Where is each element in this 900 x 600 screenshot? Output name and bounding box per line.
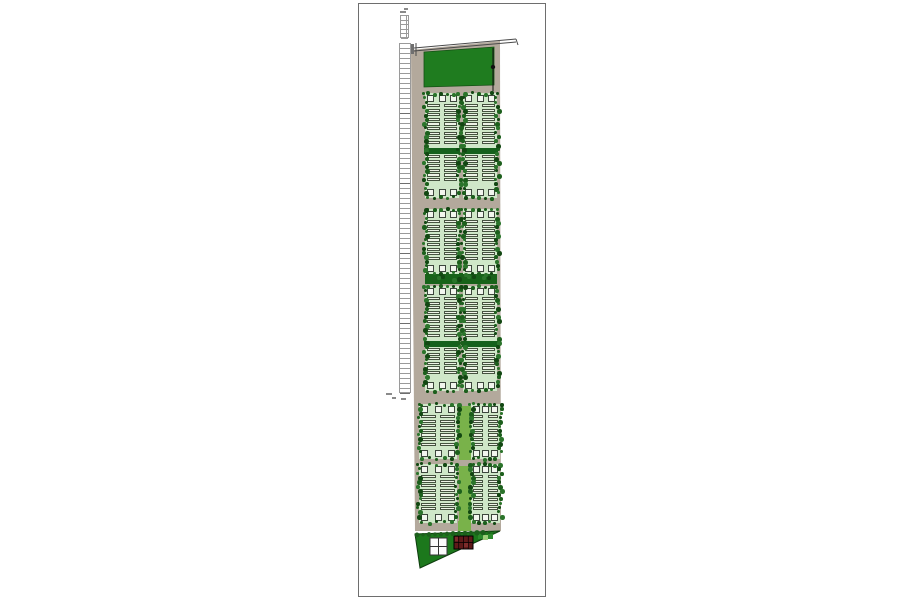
- tree: [490, 197, 494, 201]
- tree: [461, 350, 464, 353]
- unit-cap: [465, 382, 472, 389]
- housing-unit: [465, 225, 478, 228]
- unit-cap: [465, 211, 472, 218]
- park-area: [424, 47, 494, 87]
- tree: [494, 324, 497, 327]
- housing-unit: [440, 484, 455, 487]
- housing-unit: [482, 252, 495, 255]
- tree: [484, 273, 488, 277]
- housing-unit: [482, 109, 495, 112]
- tree: [457, 191, 461, 195]
- housing-unit: [482, 334, 495, 337]
- unit-cap: [427, 288, 434, 295]
- tree: [496, 208, 499, 211]
- tree: [455, 493, 458, 496]
- tree: [425, 260, 429, 264]
- housing-unit: [440, 438, 455, 441]
- tree: [427, 532, 432, 537]
- tree: [457, 238, 460, 241]
- housing-unit: [427, 104, 440, 107]
- tree: [439, 388, 442, 391]
- housing-unit: [465, 366, 478, 369]
- housing-unit: [473, 415, 483, 418]
- tree: [452, 390, 455, 393]
- housing-unit: [465, 113, 478, 116]
- tree: [498, 425, 501, 428]
- tree: [469, 531, 474, 536]
- tree: [493, 403, 496, 406]
- tree: [464, 273, 468, 277]
- housing-unit: [482, 302, 495, 305]
- housing-unit: [427, 243, 440, 246]
- screenshot-canvas: [0, 0, 900, 600]
- tree: [471, 272, 474, 275]
- tree: [461, 157, 465, 161]
- tree: [425, 101, 428, 104]
- unit-cap: [439, 211, 446, 218]
- unit-cap: [488, 265, 495, 272]
- housing-unit: [465, 141, 478, 144]
- housing-unit: [444, 325, 457, 328]
- housing-unit: [427, 334, 440, 337]
- housing-unit: [465, 127, 478, 130]
- tree: [452, 93, 456, 97]
- tree: [443, 520, 446, 523]
- housing-unit: [427, 113, 440, 116]
- tree: [416, 472, 419, 475]
- tree: [415, 533, 420, 538]
- housing-unit: [465, 248, 478, 251]
- housing-unit: [473, 489, 483, 492]
- tree: [423, 337, 427, 341]
- housing-unit: [444, 252, 457, 255]
- tree: [488, 463, 492, 467]
- tree: [493, 464, 497, 468]
- housing-unit: [444, 229, 457, 232]
- housing-unit: [482, 315, 495, 318]
- housing-unit: [482, 329, 495, 332]
- tree: [463, 217, 466, 220]
- housing-unit: [473, 424, 483, 427]
- tree: [443, 463, 447, 467]
- tree: [451, 531, 456, 536]
- tree: [500, 515, 505, 520]
- tree: [500, 472, 504, 476]
- tree: [435, 464, 438, 467]
- mini-parking-stall: [401, 34, 408, 39]
- housing-unit: [427, 225, 440, 228]
- housing-unit: [465, 243, 478, 246]
- tree: [483, 458, 487, 462]
- housing-unit: [440, 415, 455, 418]
- green-mid-band: [462, 148, 498, 154]
- tree: [463, 311, 466, 314]
- tree: [419, 412, 423, 416]
- housing-unit: [421, 415, 436, 418]
- housing-unit: [465, 136, 478, 139]
- housing-unit: [427, 220, 440, 223]
- housing-unit: [440, 429, 455, 432]
- tree: [471, 195, 475, 199]
- housing-unit: [482, 366, 495, 369]
- housing-unit: [482, 348, 495, 351]
- tree: [499, 502, 502, 505]
- unit-cap: [450, 211, 457, 218]
- tree: [463, 247, 466, 250]
- housing-unit: [444, 169, 457, 172]
- tree: [471, 91, 474, 94]
- tree: [477, 196, 481, 200]
- tree: [433, 208, 437, 212]
- tree: [452, 209, 455, 212]
- housing-unit: [465, 325, 478, 328]
- tree: [428, 522, 432, 526]
- tree: [460, 384, 464, 388]
- housing-unit: [444, 127, 457, 130]
- tree: [422, 384, 425, 387]
- housing-unit: [465, 234, 478, 237]
- tree: [484, 93, 488, 97]
- mini-parking-grid: [400, 15, 409, 38]
- tree: [494, 131, 497, 134]
- tree: [474, 530, 479, 535]
- tree: [416, 463, 419, 466]
- housing-unit: [488, 443, 498, 446]
- tree: [494, 114, 498, 118]
- housing-unit: [440, 480, 455, 483]
- housing-unit: [427, 248, 440, 251]
- housing-unit: [440, 443, 455, 446]
- tree: [493, 522, 496, 525]
- housing-unit: [440, 498, 455, 501]
- housing-unit: [465, 315, 478, 318]
- housing-unit: [473, 503, 483, 506]
- housing-unit: [465, 155, 478, 158]
- housing-unit: [488, 424, 498, 427]
- unit-cap: [435, 406, 442, 413]
- housing-unit: [488, 415, 498, 418]
- housing-unit: [482, 122, 495, 125]
- tree: [446, 207, 450, 211]
- tree: [433, 197, 436, 200]
- housing-unit: [444, 334, 457, 337]
- housing-unit: [421, 498, 436, 501]
- housing-unit: [421, 424, 436, 427]
- tree: [456, 354, 459, 357]
- tree: [421, 533, 424, 536]
- red-building-cell: [455, 537, 458, 541]
- housing-unit: [473, 433, 483, 436]
- housing-unit: [488, 433, 498, 436]
- tree: [426, 208, 429, 211]
- housing-unit: [444, 306, 457, 309]
- unit-cap: [482, 406, 489, 413]
- unit-cap: [448, 450, 455, 457]
- unit-cap: [477, 265, 484, 272]
- tree: [483, 462, 487, 466]
- housing-unit: [421, 433, 436, 436]
- tree: [484, 208, 487, 211]
- tree: [494, 531, 497, 534]
- tree: [422, 92, 425, 95]
- tree: [468, 515, 473, 520]
- tree: [472, 275, 476, 279]
- tree: [433, 532, 437, 536]
- unit-cap: [482, 466, 489, 473]
- housing-unit: [465, 334, 478, 337]
- housing-unit: [421, 480, 436, 483]
- housing-unit: [482, 362, 495, 365]
- stray-mark: [392, 397, 396, 399]
- tree: [457, 425, 460, 428]
- housing-unit: [427, 329, 440, 332]
- tree: [463, 174, 466, 177]
- tree: [450, 520, 454, 524]
- housing-unit: [421, 475, 436, 478]
- housing-unit: [482, 127, 495, 130]
- tree: [468, 403, 471, 406]
- tree: [472, 402, 475, 405]
- housing-unit: [444, 357, 457, 360]
- housing-unit: [427, 315, 440, 318]
- tree: [497, 135, 501, 139]
- housing-unit: [444, 238, 457, 241]
- housing-unit: [444, 320, 457, 323]
- housing-unit: [444, 178, 457, 181]
- tree: [462, 114, 466, 118]
- tree: [463, 187, 466, 190]
- unit-cap: [491, 450, 498, 457]
- housing-unit: [444, 136, 457, 139]
- tree: [484, 197, 487, 200]
- housing-unit: [427, 311, 440, 314]
- housing-unit: [482, 306, 495, 309]
- tree: [463, 230, 467, 234]
- tree: [416, 506, 419, 509]
- tree: [458, 337, 462, 341]
- tree: [454, 515, 458, 519]
- housing-unit: [427, 127, 440, 130]
- housing-unit: [421, 420, 436, 423]
- unit-cap: [421, 450, 428, 457]
- housing-unit: [482, 353, 495, 356]
- stray-mark: [386, 393, 392, 395]
- housing-unit: [465, 252, 478, 255]
- tree: [495, 260, 499, 264]
- housing-unit: [427, 238, 440, 241]
- housing-unit: [440, 424, 455, 427]
- unit-cap: [491, 514, 498, 521]
- housing-unit: [473, 438, 483, 441]
- housing-unit: [444, 141, 457, 144]
- housing-unit: [444, 104, 457, 107]
- tree: [446, 285, 449, 288]
- tree: [496, 92, 499, 95]
- unit-cap: [439, 265, 446, 272]
- housing-unit: [444, 122, 457, 125]
- tree: [424, 221, 427, 224]
- tree: [471, 208, 475, 212]
- tree: [424, 311, 427, 314]
- parking-stall: [400, 389, 410, 394]
- housing-unit: [444, 297, 457, 300]
- tree: [445, 532, 449, 536]
- tree: [470, 472, 474, 476]
- red-building-cell: [464, 543, 468, 547]
- tree: [500, 412, 503, 415]
- tree: [439, 208, 443, 212]
- tree: [433, 390, 437, 394]
- tree: [459, 230, 462, 233]
- tree: [425, 307, 429, 311]
- housing-unit: [473, 420, 483, 423]
- tree: [423, 174, 426, 177]
- tree: [452, 271, 455, 274]
- housing-unit: [482, 248, 495, 251]
- tree: [464, 389, 468, 393]
- tree: [494, 311, 497, 314]
- housing-unit: [440, 433, 455, 436]
- tree: [456, 148, 459, 151]
- unit-cap: [473, 466, 480, 473]
- tree: [425, 157, 429, 161]
- housing-unit: [440, 420, 455, 423]
- housing-unit: [465, 320, 478, 323]
- unit-cap: [448, 406, 455, 413]
- tree: [462, 191, 466, 195]
- tree: [490, 208, 493, 211]
- housing-unit: [444, 302, 457, 305]
- housing-unit: [488, 498, 498, 501]
- housing-unit: [427, 173, 440, 176]
- housing-unit: [427, 252, 440, 255]
- tree: [483, 403, 486, 406]
- tree: [461, 380, 464, 383]
- unit-cap: [450, 382, 457, 389]
- tree: [455, 476, 458, 479]
- tree: [424, 294, 427, 297]
- housing-unit: [444, 164, 457, 167]
- housing-unit: [482, 173, 495, 176]
- tree: [462, 144, 466, 148]
- tree: [418, 425, 421, 428]
- housing-unit: [421, 429, 436, 432]
- housing-unit: [465, 357, 478, 360]
- tree: [499, 416, 502, 419]
- tree: [471, 286, 475, 290]
- tree: [425, 230, 428, 233]
- tree: [443, 456, 447, 460]
- unit-cap: [477, 211, 484, 218]
- housing-unit: [440, 475, 455, 478]
- tree: [463, 238, 466, 241]
- tree: [456, 328, 459, 331]
- tree: [446, 272, 449, 275]
- tree: [433, 285, 436, 288]
- tree: [490, 272, 493, 275]
- tree: [477, 389, 481, 393]
- tree: [457, 531, 462, 536]
- tree: [420, 457, 424, 461]
- housing-unit: [421, 503, 436, 506]
- housing-unit: [444, 362, 457, 365]
- tree: [428, 403, 431, 406]
- tree: [418, 442, 421, 445]
- tree: [480, 530, 485, 535]
- unit-cap: [439, 95, 446, 102]
- housing-unit: [440, 489, 455, 492]
- road-right-tick: [516, 39, 518, 45]
- unit-cap: [477, 189, 484, 196]
- tree: [426, 272, 429, 275]
- tree: [433, 272, 436, 275]
- tree: [424, 238, 427, 241]
- housing-unit: [488, 429, 498, 432]
- tree: [487, 531, 490, 534]
- tree: [437, 276, 441, 280]
- housing-unit: [444, 366, 457, 369]
- housing-unit: [427, 362, 440, 365]
- housing-unit: [421, 443, 436, 446]
- housing-unit: [440, 507, 455, 510]
- tree: [460, 208, 463, 211]
- mini-grid-divider: [406, 16, 407, 37]
- tree: [454, 485, 457, 488]
- tree: [460, 294, 463, 297]
- tree: [461, 251, 464, 254]
- tree: [435, 458, 438, 461]
- housing-unit: [488, 420, 498, 423]
- unit-cap: [482, 450, 489, 457]
- tree: [425, 217, 428, 220]
- tree: [417, 515, 422, 520]
- housing-unit: [465, 238, 478, 241]
- housing-unit: [440, 493, 455, 496]
- green-checker: [483, 535, 488, 540]
- tree: [497, 118, 500, 121]
- tree: [483, 521, 487, 525]
- tree: [426, 390, 429, 393]
- housing-unit: [427, 229, 440, 232]
- unit-cap: [477, 288, 484, 295]
- housing-unit: [482, 118, 495, 121]
- housing-unit: [427, 122, 440, 125]
- housing-unit: [444, 155, 457, 158]
- unit-cap: [491, 406, 498, 413]
- unit-cap: [435, 466, 442, 473]
- tree: [424, 114, 428, 118]
- tree: [425, 264, 428, 267]
- housing-unit: [421, 438, 436, 441]
- housing-unit: [482, 225, 495, 228]
- tree: [462, 298, 465, 301]
- housing-unit: [421, 489, 436, 492]
- stray-mark: [404, 8, 408, 10]
- green-mid-band: [424, 148, 460, 154]
- tree: [455, 446, 458, 449]
- unit-cap: [421, 466, 428, 473]
- housing-unit: [482, 104, 495, 107]
- tree: [446, 197, 449, 200]
- parking-bay: [399, 43, 411, 393]
- tree: [428, 456, 431, 459]
- housing-unit: [465, 104, 478, 107]
- tree: [484, 286, 487, 289]
- housing-unit: [482, 234, 495, 237]
- tree: [497, 191, 500, 194]
- housing-unit: [473, 507, 483, 510]
- tree: [439, 272, 443, 276]
